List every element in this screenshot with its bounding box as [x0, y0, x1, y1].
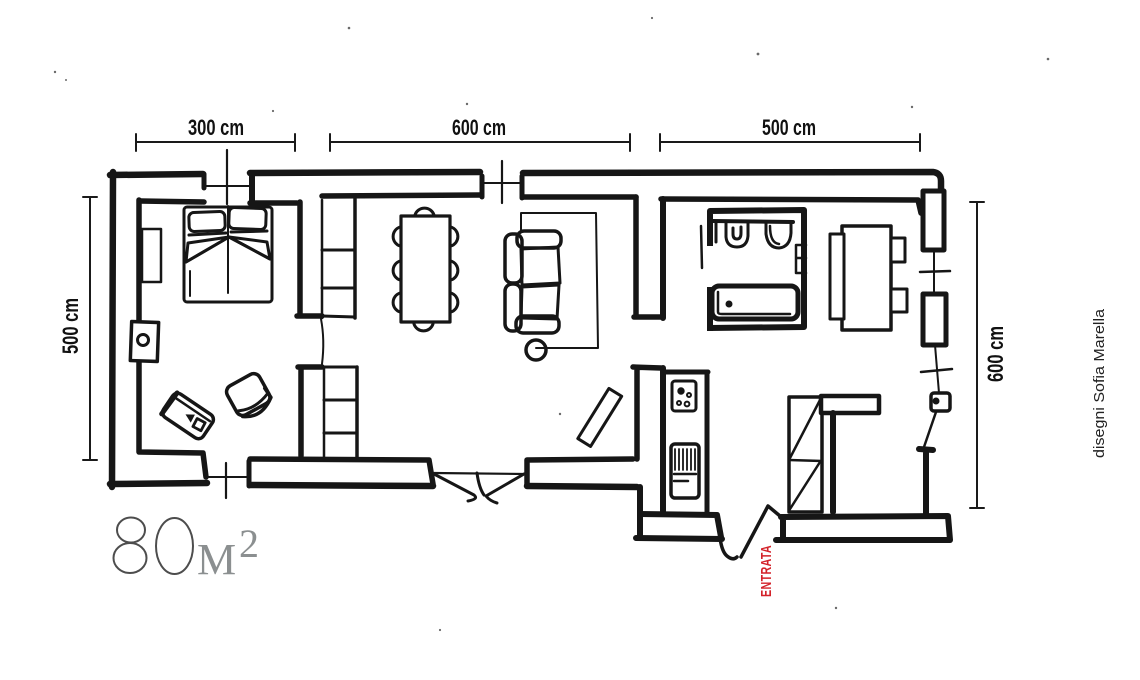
svg-text:600 cm: 600 cm [452, 115, 506, 140]
svg-text:500 cm: 500 cm [58, 298, 83, 354]
svg-text:M: M [197, 535, 236, 584]
svg-text:500 cm: 500 cm [762, 115, 816, 140]
svg-text:600 cm: 600 cm [983, 326, 1008, 382]
svg-text:ENTRATA: ENTRATA [758, 545, 775, 597]
svg-text:disegni Sofia Marella: disegni Sofia Marella [1091, 308, 1108, 458]
svg-text:300 cm: 300 cm [188, 115, 244, 140]
svg-text:2: 2 [239, 521, 259, 566]
